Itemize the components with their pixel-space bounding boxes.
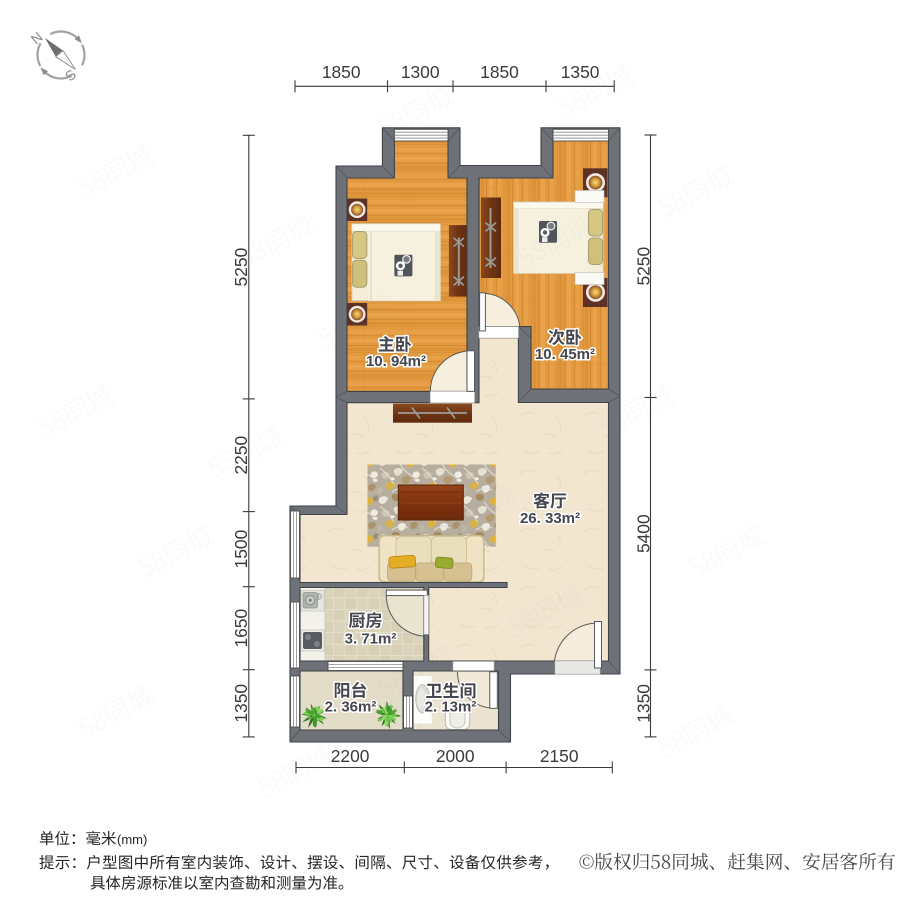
svg-text:1500: 1500: [231, 530, 251, 569]
svg-text:10. 45m²: 10. 45m²: [535, 346, 595, 363]
svg-text:1850: 1850: [480, 62, 519, 82]
svg-text:1350: 1350: [561, 62, 600, 82]
svg-text:2. 13m²: 2. 13m²: [425, 699, 477, 716]
svg-text:1650: 1650: [231, 609, 251, 648]
svg-text:26. 33m²: 26. 33m²: [520, 510, 580, 527]
svg-text:10. 94m²: 10. 94m²: [366, 353, 426, 370]
svg-text:1350: 1350: [634, 684, 654, 723]
svg-text:1850: 1850: [322, 62, 361, 82]
svg-text:1350: 1350: [231, 684, 251, 723]
svg-text:2150: 2150: [540, 746, 579, 766]
svg-text:1300: 1300: [401, 62, 440, 82]
svg-text:2200: 2200: [331, 746, 370, 766]
svg-text:2000: 2000: [436, 746, 475, 766]
svg-text:3. 71m²: 3. 71m²: [345, 631, 397, 648]
svg-text:(mm): (mm): [117, 832, 147, 847]
svg-text:5250: 5250: [634, 247, 654, 286]
svg-text:2. 36m²: 2. 36m²: [325, 699, 377, 716]
svg-text:5400: 5400: [634, 514, 654, 553]
